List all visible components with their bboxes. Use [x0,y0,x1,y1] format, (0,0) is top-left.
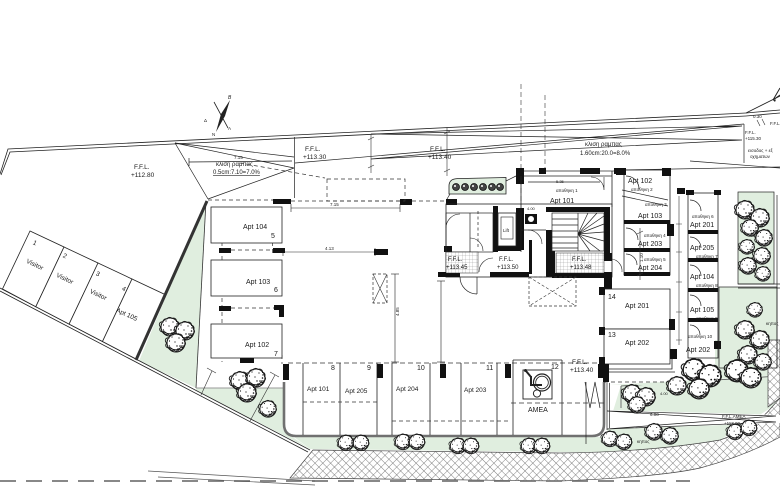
svg-text:Apt 202: Apt 202 [625,340,649,347]
svg-text:Apt 201: Apt 201 [690,222,714,229]
svg-text:F.F.L.AMEA: F.F.L.AMEA [722,414,746,419]
svg-text:F.F.L.: F.F.L. [499,257,514,263]
svg-text:Apt 103: Apt 103 [638,213,662,220]
svg-text:Apt 204: Apt 204 [638,265,662,272]
svg-text:αποθηκη 4: αποθηκη 4 [644,233,666,238]
svg-text:4.00: 4.00 [527,206,536,211]
svg-text:7.15: 7.15 [330,202,339,207]
svg-text:A: A [228,126,231,131]
svg-text:Apt 202: Apt 202 [686,347,710,354]
svg-text:κλιση ραμπας: κλιση ραμπας [216,162,253,168]
svg-text:Apt 104: Apt 104 [690,274,714,281]
svg-text:αποθηκη 2: αποθηκη 2 [631,187,653,192]
svg-text:+113.45: +113.45 [446,265,468,271]
svg-text:1.60cm:20.0=8.0%: 1.60cm:20.0=8.0% [580,151,631,157]
svg-text:Apt 203: Apt 203 [464,387,487,394]
svg-text:Apt 105: Apt 105 [690,307,714,314]
svg-text:αποθηκη 9: αποθηκη 9 [696,316,718,321]
svg-text:Apt 204: Apt 204 [396,386,419,393]
svg-text:AMEA: AMEA [528,407,548,414]
svg-text:Apt 203: Apt 203 [638,241,662,248]
svg-text:8: 8 [331,365,335,372]
svg-text:οχηματων: οχηματων [750,154,771,159]
svg-text:Apt 103: Apt 103 [246,279,270,286]
svg-text:αποθηκη 6: αποθηκη 6 [692,214,714,219]
svg-text:4.85: 4.85 [395,307,400,316]
svg-text:11: 11 [486,365,493,372]
svg-text:Apt 205: Apt 205 [690,245,714,252]
svg-text:10: 10 [417,365,425,372]
svg-text:F.F.L.: F.F.L. [572,257,587,263]
svg-text:Apt 201: Apt 201 [625,303,649,310]
svg-text:+113.40: +113.40 [428,154,452,161]
svg-text:F.F.L.: F.F.L. [745,130,756,135]
svg-text:14: 14 [608,294,616,301]
svg-text:Apt 205: Apt 205 [345,388,368,395]
svg-text:F.F.L.: F.F.L. [430,146,446,153]
svg-text:αποθηκη 7: αποθηκη 7 [696,254,718,259]
svg-text:+112.80: +112.80 [131,172,155,179]
svg-text:+113.48: +113.48 [570,265,592,271]
svg-text:Apt 102: Apt 102 [628,178,652,185]
svg-text:+113.50: +113.50 [497,265,519,271]
svg-text:5: 5 [271,233,275,240]
svg-text:κλιση ραμπας: κλιση ραμπας [585,142,622,148]
svg-text:Apt 101: Apt 101 [550,198,574,205]
svg-text:5.35: 5.35 [556,179,565,184]
svg-text:Apt 101: Apt 101 [307,386,330,393]
svg-text:+113.40: +113.40 [570,367,594,374]
svg-text:Apt 102: Apt 102 [245,342,269,349]
svg-text:Apt 104: Apt 104 [243,224,267,231]
svg-text:+113.30: +113.30 [303,154,327,161]
svg-text:6.00: 6.00 [650,412,659,417]
svg-text:F.F.L.: F.F.L. [305,146,321,153]
svg-text:εισοδος + εξ: εισοδος + εξ [748,148,773,153]
svg-text:7.15: 7.15 [234,155,243,160]
svg-text:7: 7 [274,351,278,358]
svg-text:αποθηκη 1: αποθηκη 1 [556,188,578,193]
svg-text:αποθηκη 8: αποθηκη 8 [696,283,718,288]
svg-text:13: 13 [608,332,616,339]
svg-text:F.F.L.: F.F.L. [448,257,463,263]
svg-text:4.13: 4.13 [325,246,334,251]
svg-text:9: 9 [367,365,371,372]
svg-text:6: 6 [274,287,278,294]
svg-text:F.F.L.: F.F.L. [770,121,780,126]
svg-text:N: N [212,132,215,137]
svg-text:αποθηκη 5: αποθηκη 5 [644,257,666,262]
svg-text:κηπος: κηπος [637,439,650,444]
svg-text:αποθηκη 3: αποθηκη 3 [645,202,667,207]
svg-text:Δ: Δ [204,118,207,123]
svg-text:F.F.L.: F.F.L. [572,359,588,366]
svg-text:Lift: Lift [503,228,510,233]
svg-text:4.00: 4.00 [660,391,669,396]
svg-text:F.F.L.: F.F.L. [134,164,150,171]
svg-text:+115.30: +115.30 [745,136,762,141]
svg-text:0.5cm:7.10=7.0%: 0.5cm:7.10=7.0% [213,170,261,176]
svg-text:0.30: 0.30 [753,114,762,119]
